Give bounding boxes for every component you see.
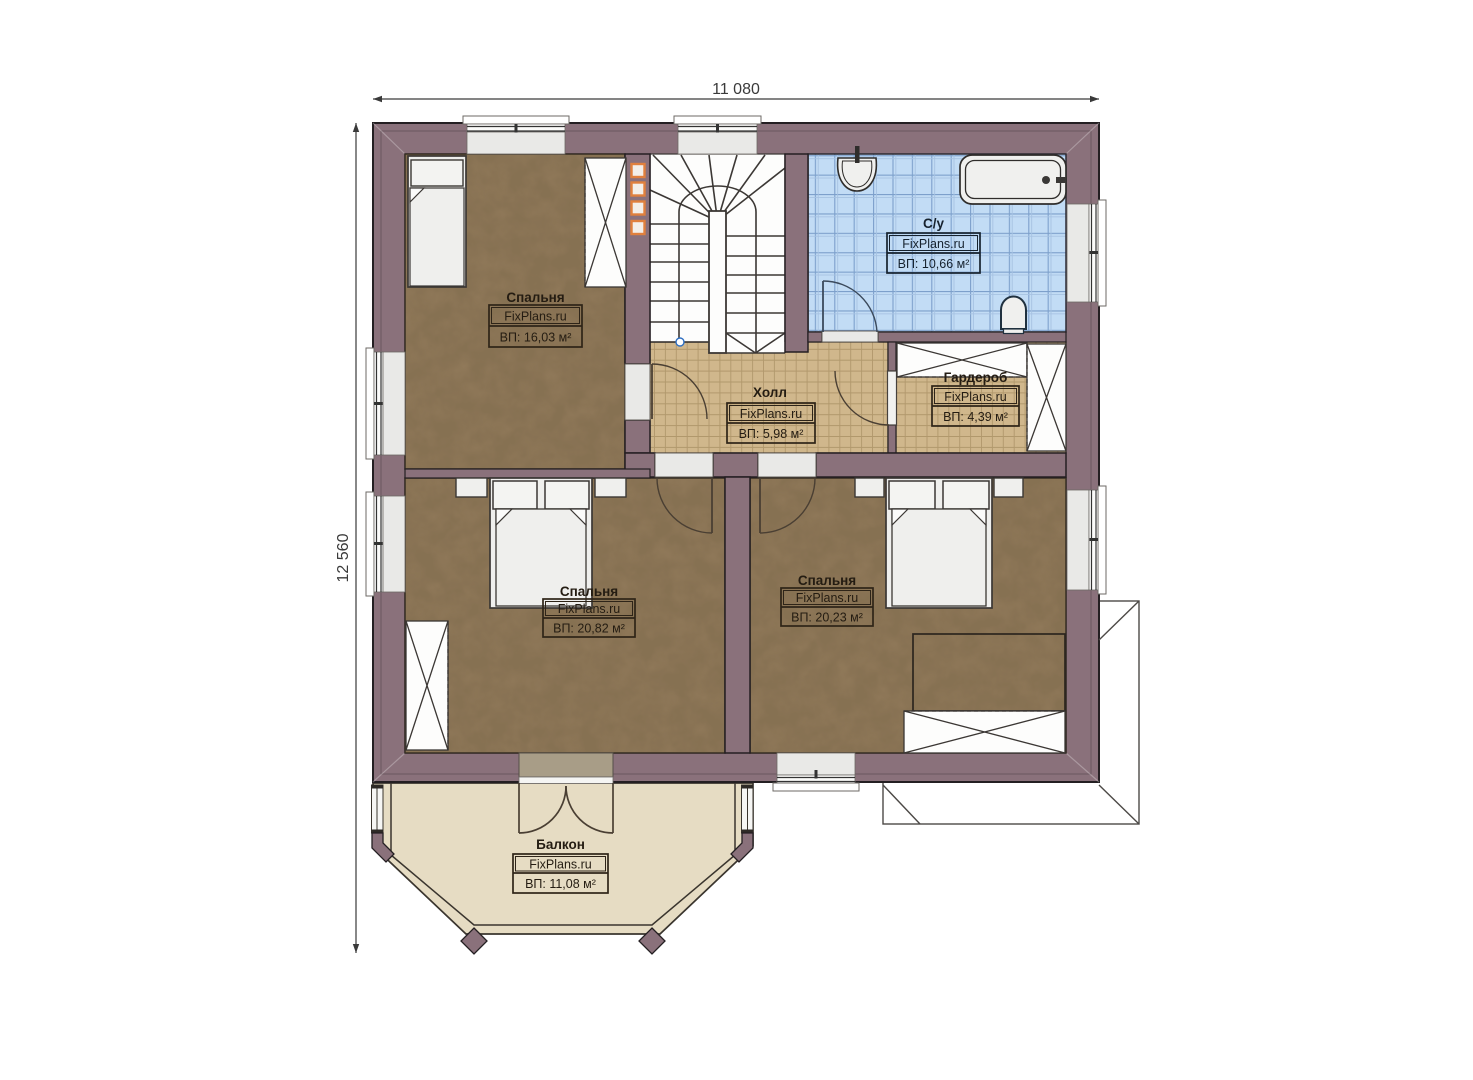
svg-text:FixPlans.ru: FixPlans.ru	[796, 591, 859, 605]
svg-text:ВП: 20,82 м²: ВП: 20,82 м²	[553, 622, 625, 636]
svg-text:С/у: С/у	[923, 216, 945, 231]
svg-text:FixPlans.ru: FixPlans.ru	[740, 407, 803, 421]
svg-text:Спальня: Спальня	[560, 584, 618, 599]
svg-text:ВП: 11,08 м²: ВП: 11,08 м²	[525, 877, 596, 891]
svg-text:12 560: 12 560	[335, 533, 352, 582]
svg-text:FixPlans.ru: FixPlans.ru	[558, 602, 621, 616]
svg-text:Гардероб: Гардероб	[944, 370, 1008, 385]
svg-text:Балкон: Балкон	[536, 837, 585, 852]
svg-text:Холл: Холл	[753, 385, 787, 400]
svg-text:ВП: 10,66 м²: ВП: 10,66 м²	[898, 257, 970, 271]
svg-text:Спальня: Спальня	[798, 573, 856, 588]
svg-text:11 080: 11 080	[712, 81, 760, 98]
svg-text:FixPlans.ru: FixPlans.ru	[944, 390, 1007, 404]
svg-text:ВП: 16,03 м²: ВП: 16,03 м²	[500, 331, 572, 345]
svg-text:FixPlans.ru: FixPlans.ru	[504, 310, 567, 324]
svg-text:ВП: 20,23 м²: ВП: 20,23 м²	[791, 611, 863, 625]
svg-text:Спальня: Спальня	[506, 290, 564, 305]
svg-text:ВП: 5,98 м²: ВП: 5,98 м²	[739, 427, 804, 441]
svg-text:FixPlans.ru: FixPlans.ru	[529, 858, 592, 872]
svg-text:ВП: 4,39 м²: ВП: 4,39 м²	[943, 410, 1008, 424]
svg-text:FixPlans.ru: FixPlans.ru	[902, 237, 965, 251]
